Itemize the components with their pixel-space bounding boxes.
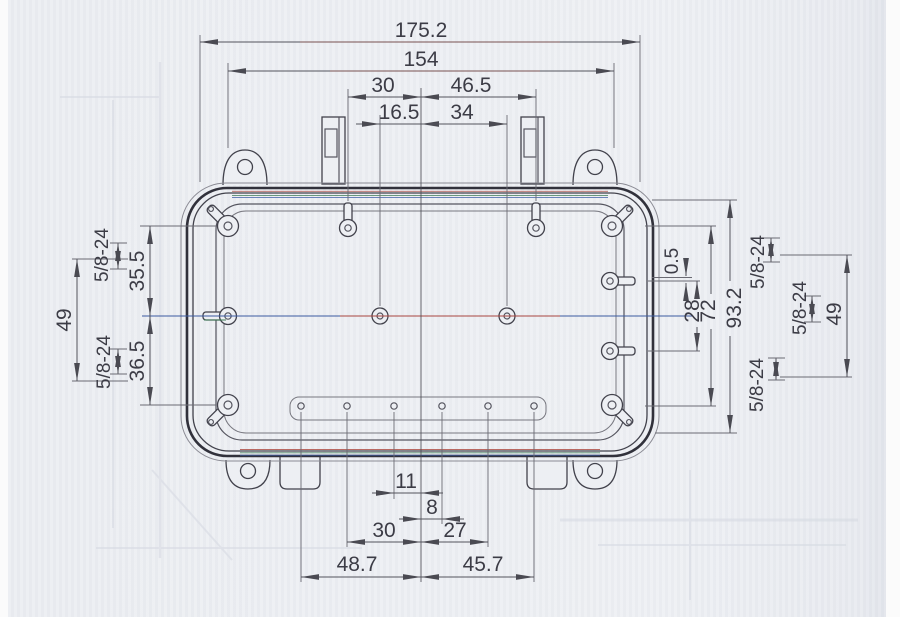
dim-top-hole-right-label: 34 <box>450 101 474 124</box>
corner-boss-bottom-right <box>597 390 638 431</box>
dim-bottom-inner-right-label: 8 <box>426 496 438 519</box>
edge-boss-top-2 <box>528 203 545 237</box>
thread-callout-upper-left: 5/8-24 <box>92 228 127 282</box>
recess-hole <box>298 403 304 409</box>
recess-hole <box>439 403 445 409</box>
dim-left-upper-label: 35.5 <box>126 251 149 292</box>
dim-overall-height: 93.2 <box>723 200 746 433</box>
dim-left-span: 49 <box>53 259 77 381</box>
scan-color-fringes <box>232 191 608 455</box>
dim-right-gap-label: 0.5 <box>662 248 683 274</box>
bottom-tab-right <box>527 457 567 489</box>
recess-hole <box>344 403 350 409</box>
dim-top-right-label: 46.5 <box>451 74 492 97</box>
dim-top-left-label: 30 <box>371 74 394 97</box>
dim-right-span-label: 49 <box>823 302 846 325</box>
thread-callout-upper-right-label: 5/8-24 <box>748 235 769 289</box>
dim-bottom-inner-right: 8 <box>399 496 464 519</box>
dim-top-right: 46.5 <box>421 74 536 97</box>
body-outline-heavy <box>187 188 653 456</box>
engineering-drawing: 175.2 154 30 46.5 16.5 <box>0 0 900 617</box>
thread-callout-lower-left-label: 5/8-24 <box>94 335 115 389</box>
dim-left-upper: 35.5 <box>126 226 150 316</box>
dim-bottom-inner-left: 11 <box>372 470 443 493</box>
dim-right-gap: 0.5 <box>662 248 686 299</box>
dim-overall-width-label: 175.2 <box>395 19 448 42</box>
edge-boss-right-lower <box>602 343 636 360</box>
dim-right-span: 49 <box>823 255 847 377</box>
thread-callout-far-right-label: 5/8-24 <box>790 281 811 335</box>
recess-holes <box>298 403 537 409</box>
dim-bottom-outer-right: 45.7 <box>421 553 534 577</box>
bottom-tab-left <box>280 457 320 489</box>
thread-callout-upper-left-label: 5/8-24 <box>92 228 113 282</box>
dim-bottom-mid-right-label: 27 <box>443 519 466 542</box>
dim-bottom-outer-right-label: 45.7 <box>463 553 504 576</box>
dim-top-hole-left: 16.5 <box>356 101 445 124</box>
gasket-outline <box>193 193 647 451</box>
dim-mount-span-label: 154 <box>403 48 438 71</box>
scanned-drawing-page: 175.2 154 30 46.5 16.5 <box>0 0 900 617</box>
dim-bottom-mid-left: 30 <box>347 519 421 542</box>
dim-bottom-outer-left: 48.7 <box>301 553 421 577</box>
dim-left-lower: 36.5 <box>126 316 150 405</box>
recess-hole <box>485 403 491 409</box>
dim-bottom-inner-left-label: 11 <box>395 470 417 493</box>
recess-hole <box>391 403 397 409</box>
inner-wall-outline <box>216 204 624 440</box>
inner-wall-outline-2 <box>224 211 616 433</box>
thread-callout-lower-right: 5/8-24 <box>747 358 785 412</box>
edge-boss-right-upper <box>602 273 636 290</box>
dim-top-hole-left-label: 16.5 <box>379 101 420 124</box>
dim-left-lower-label: 36.5 <box>126 341 149 382</box>
dim-right-mid-label: 72 <box>697 299 720 322</box>
latch-clip-right <box>521 117 544 184</box>
mounting-ear-top-right <box>573 150 617 185</box>
enclosure-body <box>181 117 659 489</box>
corner-boss-top-right <box>597 199 638 240</box>
dim-bottom-outer-left-label: 48.7 <box>337 553 378 576</box>
dim-top-left: 30 <box>348 74 421 97</box>
dim-right-mid: 72 <box>697 226 720 406</box>
dim-bottom-mid-left-label: 30 <box>372 519 395 542</box>
edge-boss-top-1 <box>340 203 357 237</box>
dim-left-span-label: 49 <box>53 308 76 331</box>
dimensions: 175.2 154 30 46.5 16.5 <box>53 19 852 582</box>
latch-clip-left <box>322 117 345 184</box>
thread-callout-far-right: 5/8-24 <box>790 281 821 335</box>
dim-bottom-mid-right: 27 <box>421 519 488 542</box>
dim-mount-span: 154 <box>228 48 614 71</box>
flange-outline-outer <box>181 183 659 461</box>
dim-top-hole-right: 34 <box>421 101 507 124</box>
dim-overall-width: 175.2 <box>200 19 640 42</box>
mounting-ear-bottom-right <box>573 460 617 489</box>
dim-overall-height-label: 93.2 <box>723 288 746 329</box>
corner-boss-top-left <box>201 199 242 240</box>
label-recess <box>290 397 546 420</box>
mounting-ear-bottom-left <box>226 460 270 489</box>
recess-hole <box>531 403 537 409</box>
thread-callout-upper-right: 5/8-24 <box>748 235 780 289</box>
thread-callout-lower-right-label: 5/8-24 <box>747 358 768 412</box>
corner-boss-bottom-left <box>201 390 242 431</box>
mounting-ear-top-left <box>223 150 267 185</box>
